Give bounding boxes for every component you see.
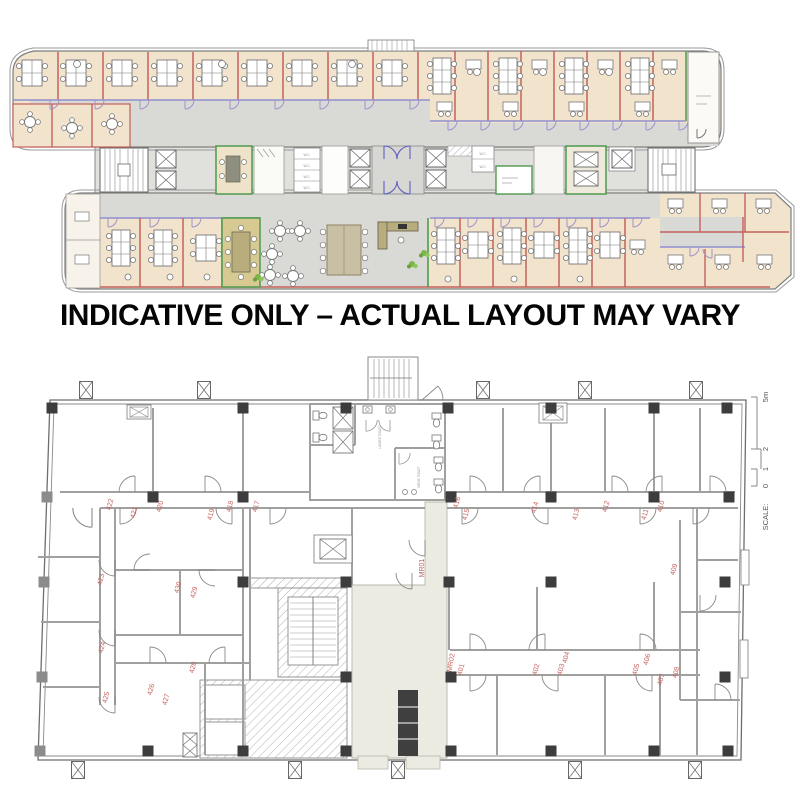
core-stair-right: [648, 148, 695, 192]
core-chair-store: [566, 146, 606, 194]
page: { "banner": { "text": "INDICATIVE ONLY –…: [0, 0, 800, 800]
scale-max: 5m: [761, 392, 770, 402]
scale-tick: 0: [761, 484, 770, 488]
core-room-2: [322, 146, 348, 194]
core-lift-right: [609, 147, 635, 171]
base-plan: LADIES TOILET MENS TOILET: [0, 345, 800, 800]
shaft-ladder: [183, 733, 197, 757]
scale-bar: 5m 2 1 0 SCALE:: [751, 392, 770, 531]
wc-label: W.C.: [480, 165, 487, 169]
fitout-plan: W.C. W.C. W.C. W.C. W.C. W.C.: [0, 0, 800, 300]
wc-label: W.C.: [304, 175, 311, 179]
core-comms-room: [496, 166, 532, 194]
wc-label: W.C.: [480, 152, 487, 156]
external-stair-top: [368, 357, 443, 400]
bottomband-meeting-room: [222, 218, 260, 287]
toilet-label: MENS TOILET: [417, 466, 421, 487]
core-room-3: [534, 146, 564, 194]
wc-label: W.C.: [304, 164, 311, 168]
scale-label: SCALE:: [761, 504, 770, 531]
topband-end-room: [688, 52, 719, 143]
toilet-label: LADIES TOILET: [378, 425, 382, 448]
scale-tick: 1: [761, 467, 770, 471]
core-store-room: [254, 146, 284, 194]
disclaimer-banner: INDICATIVE ONLY – ACTUAL LAYOUT MAY VARY: [0, 299, 800, 333]
offices-topleft-row2: [13, 104, 130, 147]
core-hatch-strip: [448, 146, 472, 156]
bottomband-end-rooms: [66, 194, 100, 288]
wc-label: W.C.: [304, 153, 311, 157]
core-stair-left: [100, 148, 148, 192]
core-wc-stack: W.C. W.C. W.C. W.C.: [294, 148, 320, 192]
core-elevator: [314, 535, 352, 563]
topband-stair-bump: [368, 40, 414, 51]
toilet-core: LADIES TOILET MENS TOILET: [310, 404, 445, 500]
core-lift-lobby: [372, 146, 424, 194]
scale-tick: 2: [761, 447, 770, 451]
meeting-room-label: MR01: [419, 559, 426, 578]
wc-label: W.C.: [304, 186, 311, 190]
core-wc-pair: W.C. W.C.: [472, 146, 494, 172]
core-meeting-room-green: [216, 146, 252, 194]
